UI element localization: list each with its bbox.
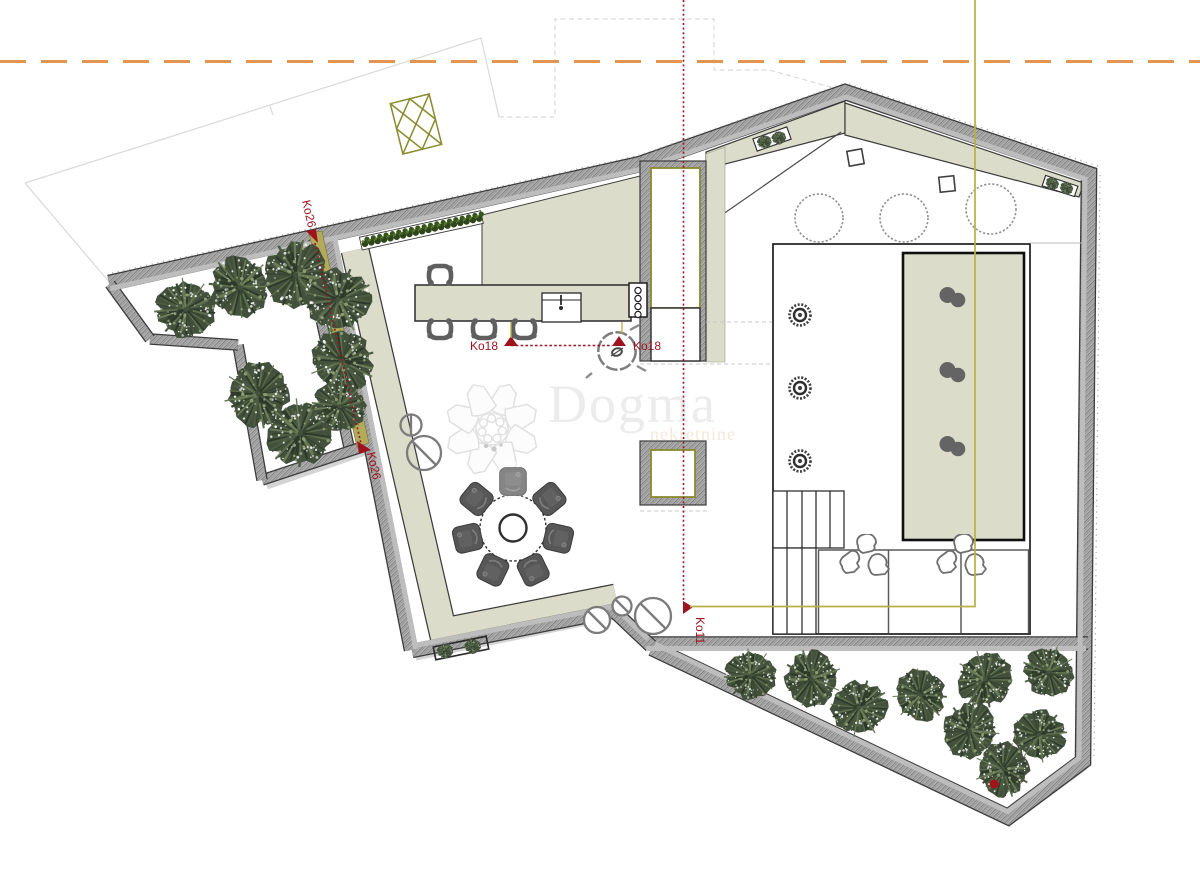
svg-text:Ko11: Ko11 — [693, 617, 707, 644]
svg-text:Ko18: Ko18 — [470, 339, 498, 353]
svg-text:Ko18: Ko18 — [633, 339, 661, 353]
